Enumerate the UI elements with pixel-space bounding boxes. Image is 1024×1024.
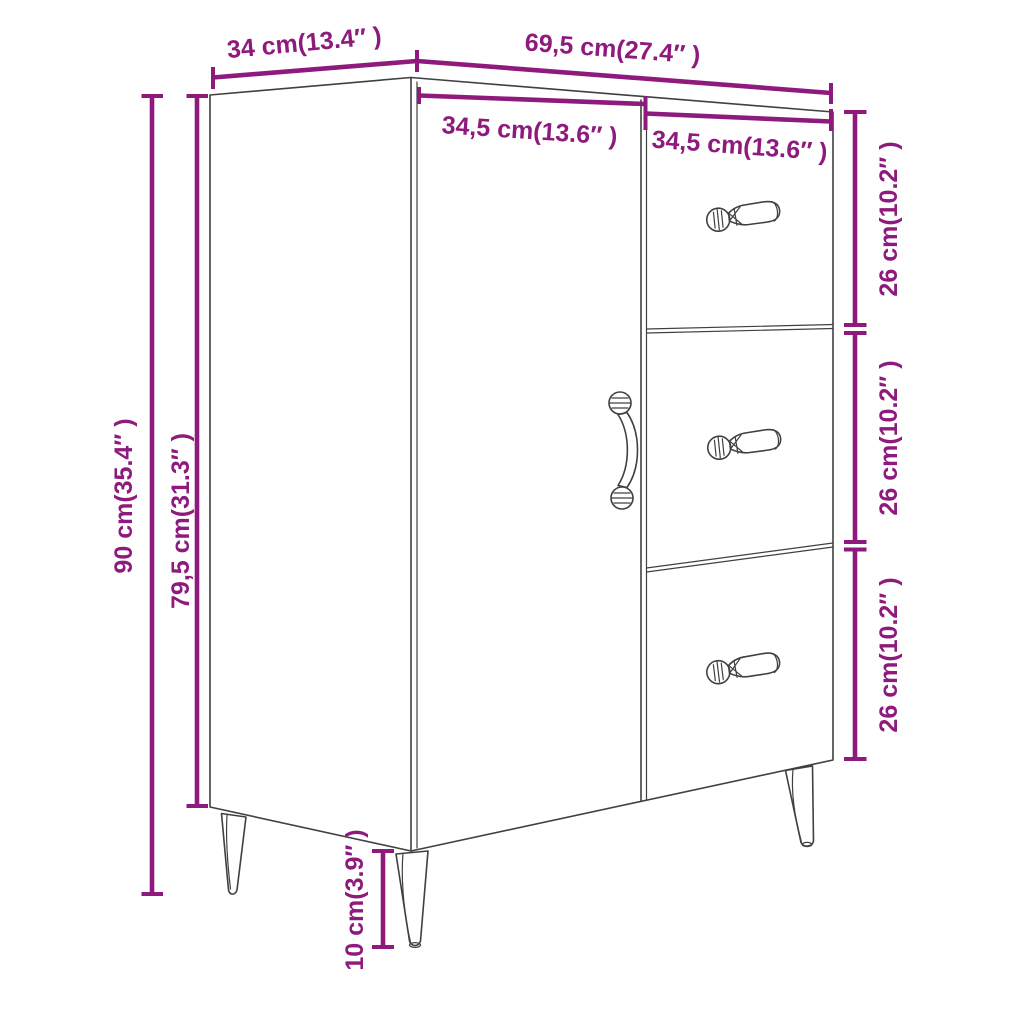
dimension-labels: 34 cm(13.4″ ) 69,5 cm(27.4″ ) 34,5 cm(13…	[110, 22, 903, 971]
dim-label-drawers-width: 34,5 cm(13.6″ )	[651, 126, 829, 167]
drawer-separator-bottom	[647, 543, 834, 572]
drawer-2-handle	[706, 428, 782, 460]
door-handle-top-knob-grooves	[610, 398, 630, 408]
diagram-canvas: 34 cm(13.4″ ) 69,5 cm(27.4″ ) 34,5 cm(13…	[0, 0, 1024, 1024]
dimension-lines	[142, 50, 867, 947]
drawer-1-handle-knob-grooves	[713, 209, 723, 230]
dim-label-top-drawer-height: 26 cm(10.2″ )	[875, 141, 903, 296]
dim-line-depth	[213, 61, 417, 78]
cabinet-side-panel	[210, 78, 411, 852]
dim-label-total-height: 90 cm(35.4″ )	[110, 418, 138, 573]
dim-label-width: 69,5 cm(27.4″ )	[524, 28, 702, 69]
leg-back-left	[222, 814, 247, 895]
drawer-1-handle	[705, 200, 781, 232]
dim-label-leg-height: 10 cm(3.9″ )	[341, 829, 369, 970]
drawer-2-handle-knob-grooves	[714, 437, 724, 458]
leg-front-left-contour	[402, 854, 410, 943]
door-handle	[609, 392, 638, 509]
cabinet-drawing	[210, 78, 833, 948]
door-handle-bar	[618, 413, 638, 488]
dim-label-body-height: 79,5 cm(31.3″ )	[167, 433, 195, 609]
legs	[222, 766, 814, 947]
drawer-3-handle	[705, 652, 781, 685]
dim-label-middle-drawer-height: 26 cm(10.2″ )	[875, 360, 903, 515]
dim-label-bottom-drawer-height: 26 cm(10.2″ )	[875, 577, 903, 732]
dim-line-width	[417, 61, 831, 93]
dim-line-drawers-width	[646, 114, 832, 122]
drawer-3-handle-knob-grooves	[713, 661, 723, 682]
leg-front-right-contour	[792, 769, 801, 842]
cabinet-front-outline	[411, 78, 833, 852]
dim-label-door-width: 34,5 cm(13.6″ )	[441, 111, 618, 151]
dim-label-depth: 34 cm(13.4″ )	[226, 22, 383, 64]
dim-line-door-width	[419, 96, 645, 105]
sideboard-dimension-diagram: 34 cm(13.4″ ) 69,5 cm(27.4″ ) 34,5 cm(13…	[0, 0, 1024, 1024]
leg-front-left	[396, 851, 428, 946]
drawer-separator-top	[647, 325, 834, 334]
drawer-3-handle-end-detail	[771, 652, 778, 672]
door-handle-bottom-knob-grooves	[612, 493, 632, 503]
